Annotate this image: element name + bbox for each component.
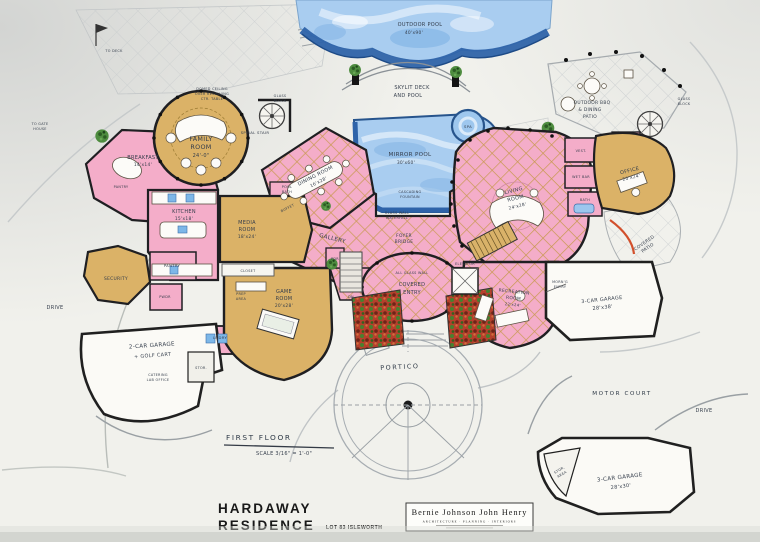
fountain-note2: FOUNTAIN bbox=[400, 195, 420, 199]
media-room-dim: 18'x24' bbox=[238, 234, 256, 240]
bbq-label: OUTDOOR BBQ bbox=[574, 100, 611, 106]
floor-plan-canvas: OUTDOOR POOL 40'x90' SKYLIT DECK AND POO… bbox=[0, 0, 760, 542]
game-sofa bbox=[236, 282, 266, 291]
grill-icon bbox=[624, 70, 633, 78]
game-room-dim: 20'x28' bbox=[275, 303, 293, 309]
glass-block-label2: BLOCK bbox=[678, 102, 691, 106]
breakfast-label: BREAKFAST bbox=[127, 155, 159, 161]
laundry-label: LNDRY bbox=[213, 335, 227, 340]
vest-label: VEST. bbox=[576, 149, 587, 153]
dome-note: DOMED CEILING bbox=[196, 87, 228, 91]
covered-entry-label2: ENTRY bbox=[403, 290, 421, 296]
glasswall-note: GLASS WALL bbox=[385, 211, 410, 215]
breakfast-dim: 14'x14' bbox=[134, 162, 152, 168]
firm-name: Bernie Johnson John Henry bbox=[412, 508, 528, 517]
pwdr-label: PWDR bbox=[159, 295, 171, 299]
media-room bbox=[220, 196, 312, 262]
spa-label: SPA bbox=[464, 124, 472, 129]
appliance-icon bbox=[186, 194, 194, 202]
game-room-label2: ROOM bbox=[276, 296, 293, 302]
prep-area-label: PREP bbox=[236, 292, 246, 296]
morning-entry-label2: ENTRY bbox=[554, 285, 567, 289]
wet-bar-label: WET BAR bbox=[572, 175, 590, 179]
dome-note3: CTR. TABLE bbox=[201, 97, 223, 101]
entry-glass-note: ALL GLASS WALL bbox=[396, 271, 429, 275]
covered-entry-label: COVERED bbox=[399, 282, 426, 288]
glass-block1-label2: BLOCK bbox=[274, 99, 287, 103]
catering-note: CATERING bbox=[148, 373, 168, 377]
family-room-dim: 24'-0" bbox=[193, 153, 210, 159]
spiral-stair-1-icon bbox=[260, 104, 285, 129]
media-room-label: MEDIA bbox=[238, 220, 256, 226]
pantry1-label: PANTRY bbox=[114, 185, 129, 189]
pool-bath-label2: BATH bbox=[282, 190, 292, 194]
mirror-pool-dim: 30'x60' bbox=[397, 160, 415, 166]
appliance-icon bbox=[168, 194, 176, 202]
firm-tagline: ARCHITECTURE · PLANNING · INTERIORS bbox=[423, 520, 517, 524]
mirror-pool-label: MIRROR POOL bbox=[389, 152, 432, 158]
scan-edge-bottom bbox=[0, 532, 760, 542]
elevator-label: ELEVATOR bbox=[455, 262, 475, 266]
flower-bed-west bbox=[352, 290, 404, 350]
morning-entry-label: MORN'G bbox=[552, 280, 568, 284]
kitchen-label: KITCHEN bbox=[172, 209, 196, 215]
stor-label: STOR. bbox=[195, 366, 207, 370]
drive-east-label: DRIVE bbox=[696, 408, 713, 414]
spiral-stair-label: SPIRAL STAIR bbox=[241, 130, 270, 135]
to-gate-note: TO GATE bbox=[31, 122, 49, 126]
media-room-label2: ROOM bbox=[239, 227, 256, 233]
skylit-deck-label2: AND POOL bbox=[394, 93, 423, 99]
office-room bbox=[594, 133, 674, 214]
glasswall-note2: WATERFALL bbox=[386, 216, 408, 220]
game-room-label: GAME bbox=[276, 289, 292, 295]
prep-area-label2: AREA bbox=[236, 297, 247, 301]
to-deck-note: TO DECK bbox=[104, 49, 123, 53]
family-room-label: FAMILY bbox=[189, 135, 212, 143]
foyer-label: FOYER bbox=[396, 233, 412, 239]
fountain-note: CASCADING bbox=[398, 190, 421, 194]
glass-block1-label: GLASS bbox=[274, 94, 287, 98]
scanned-floor-plan-sheet: OUTDOOR POOL 40'x90' SKYLIT DECK AND POO… bbox=[0, 0, 760, 542]
project-name-line1: HARDAWAY bbox=[218, 501, 312, 516]
first-floor-title: FIRST FLOOR bbox=[226, 433, 292, 442]
skylit-deck-label: SKYLIT DECK bbox=[394, 85, 430, 91]
glass-block-label: GLASS bbox=[678, 97, 691, 101]
foyer-label2: BRIDGE bbox=[395, 239, 414, 245]
patio-table bbox=[584, 78, 600, 94]
bbq-label2: & DINING bbox=[578, 107, 601, 113]
pantry2-label: PANTRY bbox=[164, 263, 181, 268]
outdoor-pool-dim: 40'x90' bbox=[405, 30, 423, 36]
family-room-label2: ROOM bbox=[190, 143, 211, 151]
security-label: SECURITY bbox=[104, 276, 128, 282]
scan-edge-fade bbox=[0, 526, 760, 532]
bbq-label3: PATIO bbox=[583, 114, 597, 120]
kitchen-dim: 15'x18' bbox=[175, 216, 193, 222]
bath-label: BATH bbox=[580, 198, 590, 202]
dome-note2: OVER REVOLVING bbox=[195, 92, 229, 96]
to-gate-note2: HOUSE bbox=[33, 127, 47, 131]
motor-court-label: MOTOR COURT bbox=[592, 391, 652, 397]
catering-note2: LAB OFFICE bbox=[147, 378, 170, 382]
dn-label: DN bbox=[348, 295, 354, 299]
drive-west-label: DRIVE bbox=[47, 305, 64, 311]
sink-icon bbox=[178, 226, 187, 233]
pdr-label: PDR bbox=[331, 257, 339, 261]
scale-note: SCALE 3/16" = 1'-0" bbox=[256, 451, 312, 457]
pool-bath-label: POOL bbox=[282, 185, 292, 189]
closet-label: CLOSET bbox=[241, 269, 257, 273]
outdoor-pool-label: OUTDOOR POOL bbox=[398, 22, 443, 28]
tub-icon bbox=[574, 204, 594, 213]
spiral-stair-2-icon bbox=[638, 112, 663, 137]
